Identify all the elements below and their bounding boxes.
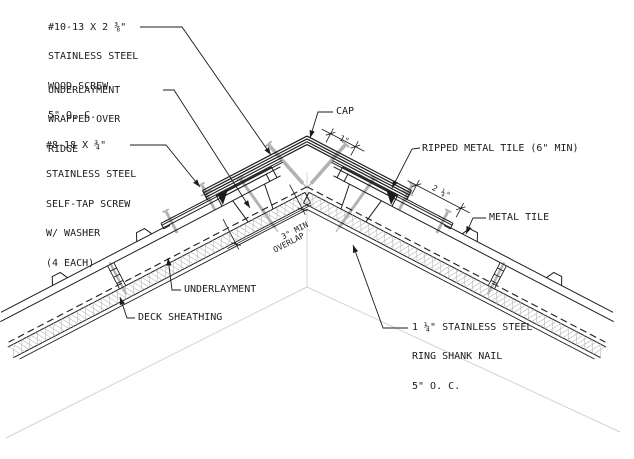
label-cap: CAP bbox=[336, 105, 354, 120]
leader-lines bbox=[120, 27, 486, 328]
dim-text-cap-edge: 1" bbox=[338, 134, 351, 146]
label-line: 1 ¼" STAINLESS STEEL bbox=[412, 322, 532, 333]
label-line: STAINLESS STEEL bbox=[46, 169, 136, 180]
leader-underlayment-ridge bbox=[163, 90, 250, 208]
label-self-tap-screw: #8-18 X ¾" STAINLESS STEEL SELF-TAP SCRE… bbox=[46, 139, 136, 271]
label-line: #8-18 X ¾" bbox=[46, 140, 106, 151]
label-line: W/ WASHER bbox=[46, 228, 100, 239]
leader-wood-screw bbox=[140, 27, 271, 155]
label-line: UNDERLAYMENT bbox=[48, 85, 120, 96]
label-line: 5" O. C. bbox=[412, 381, 460, 392]
label-line: #10-13 X 2 ⅜" bbox=[48, 22, 126, 33]
label-ring-shank-nail: 1 ¼" STAINLESS STEEL RING SHANK NAIL 5" … bbox=[412, 321, 532, 395]
label-metal-tile: METAL TILE bbox=[489, 211, 549, 226]
leader-self-tap bbox=[130, 145, 200, 187]
label-underlayment: UNDERLAYMENT bbox=[184, 283, 256, 298]
label-line: (4 EACH) bbox=[46, 258, 94, 269]
dimension-ripped-tile bbox=[403, 175, 472, 222]
ridge-detail-sheet: 1" 2 ¼" 3" MIN OVERLAP #10-13 X 2 ⅜" STA… bbox=[0, 0, 634, 459]
label-line: WRAPPED OVER bbox=[48, 114, 120, 125]
label-line: STAINLESS STEEL bbox=[48, 51, 138, 62]
label-line: RING SHANK NAIL bbox=[412, 351, 502, 362]
label-deck-sheathing: DECK SHEATHING bbox=[138, 311, 222, 326]
label-line: SELF-TAP SCREW bbox=[46, 199, 130, 210]
label-ripped-metal-tile: RIPPED METAL TILE (6" MIN) bbox=[422, 142, 579, 157]
